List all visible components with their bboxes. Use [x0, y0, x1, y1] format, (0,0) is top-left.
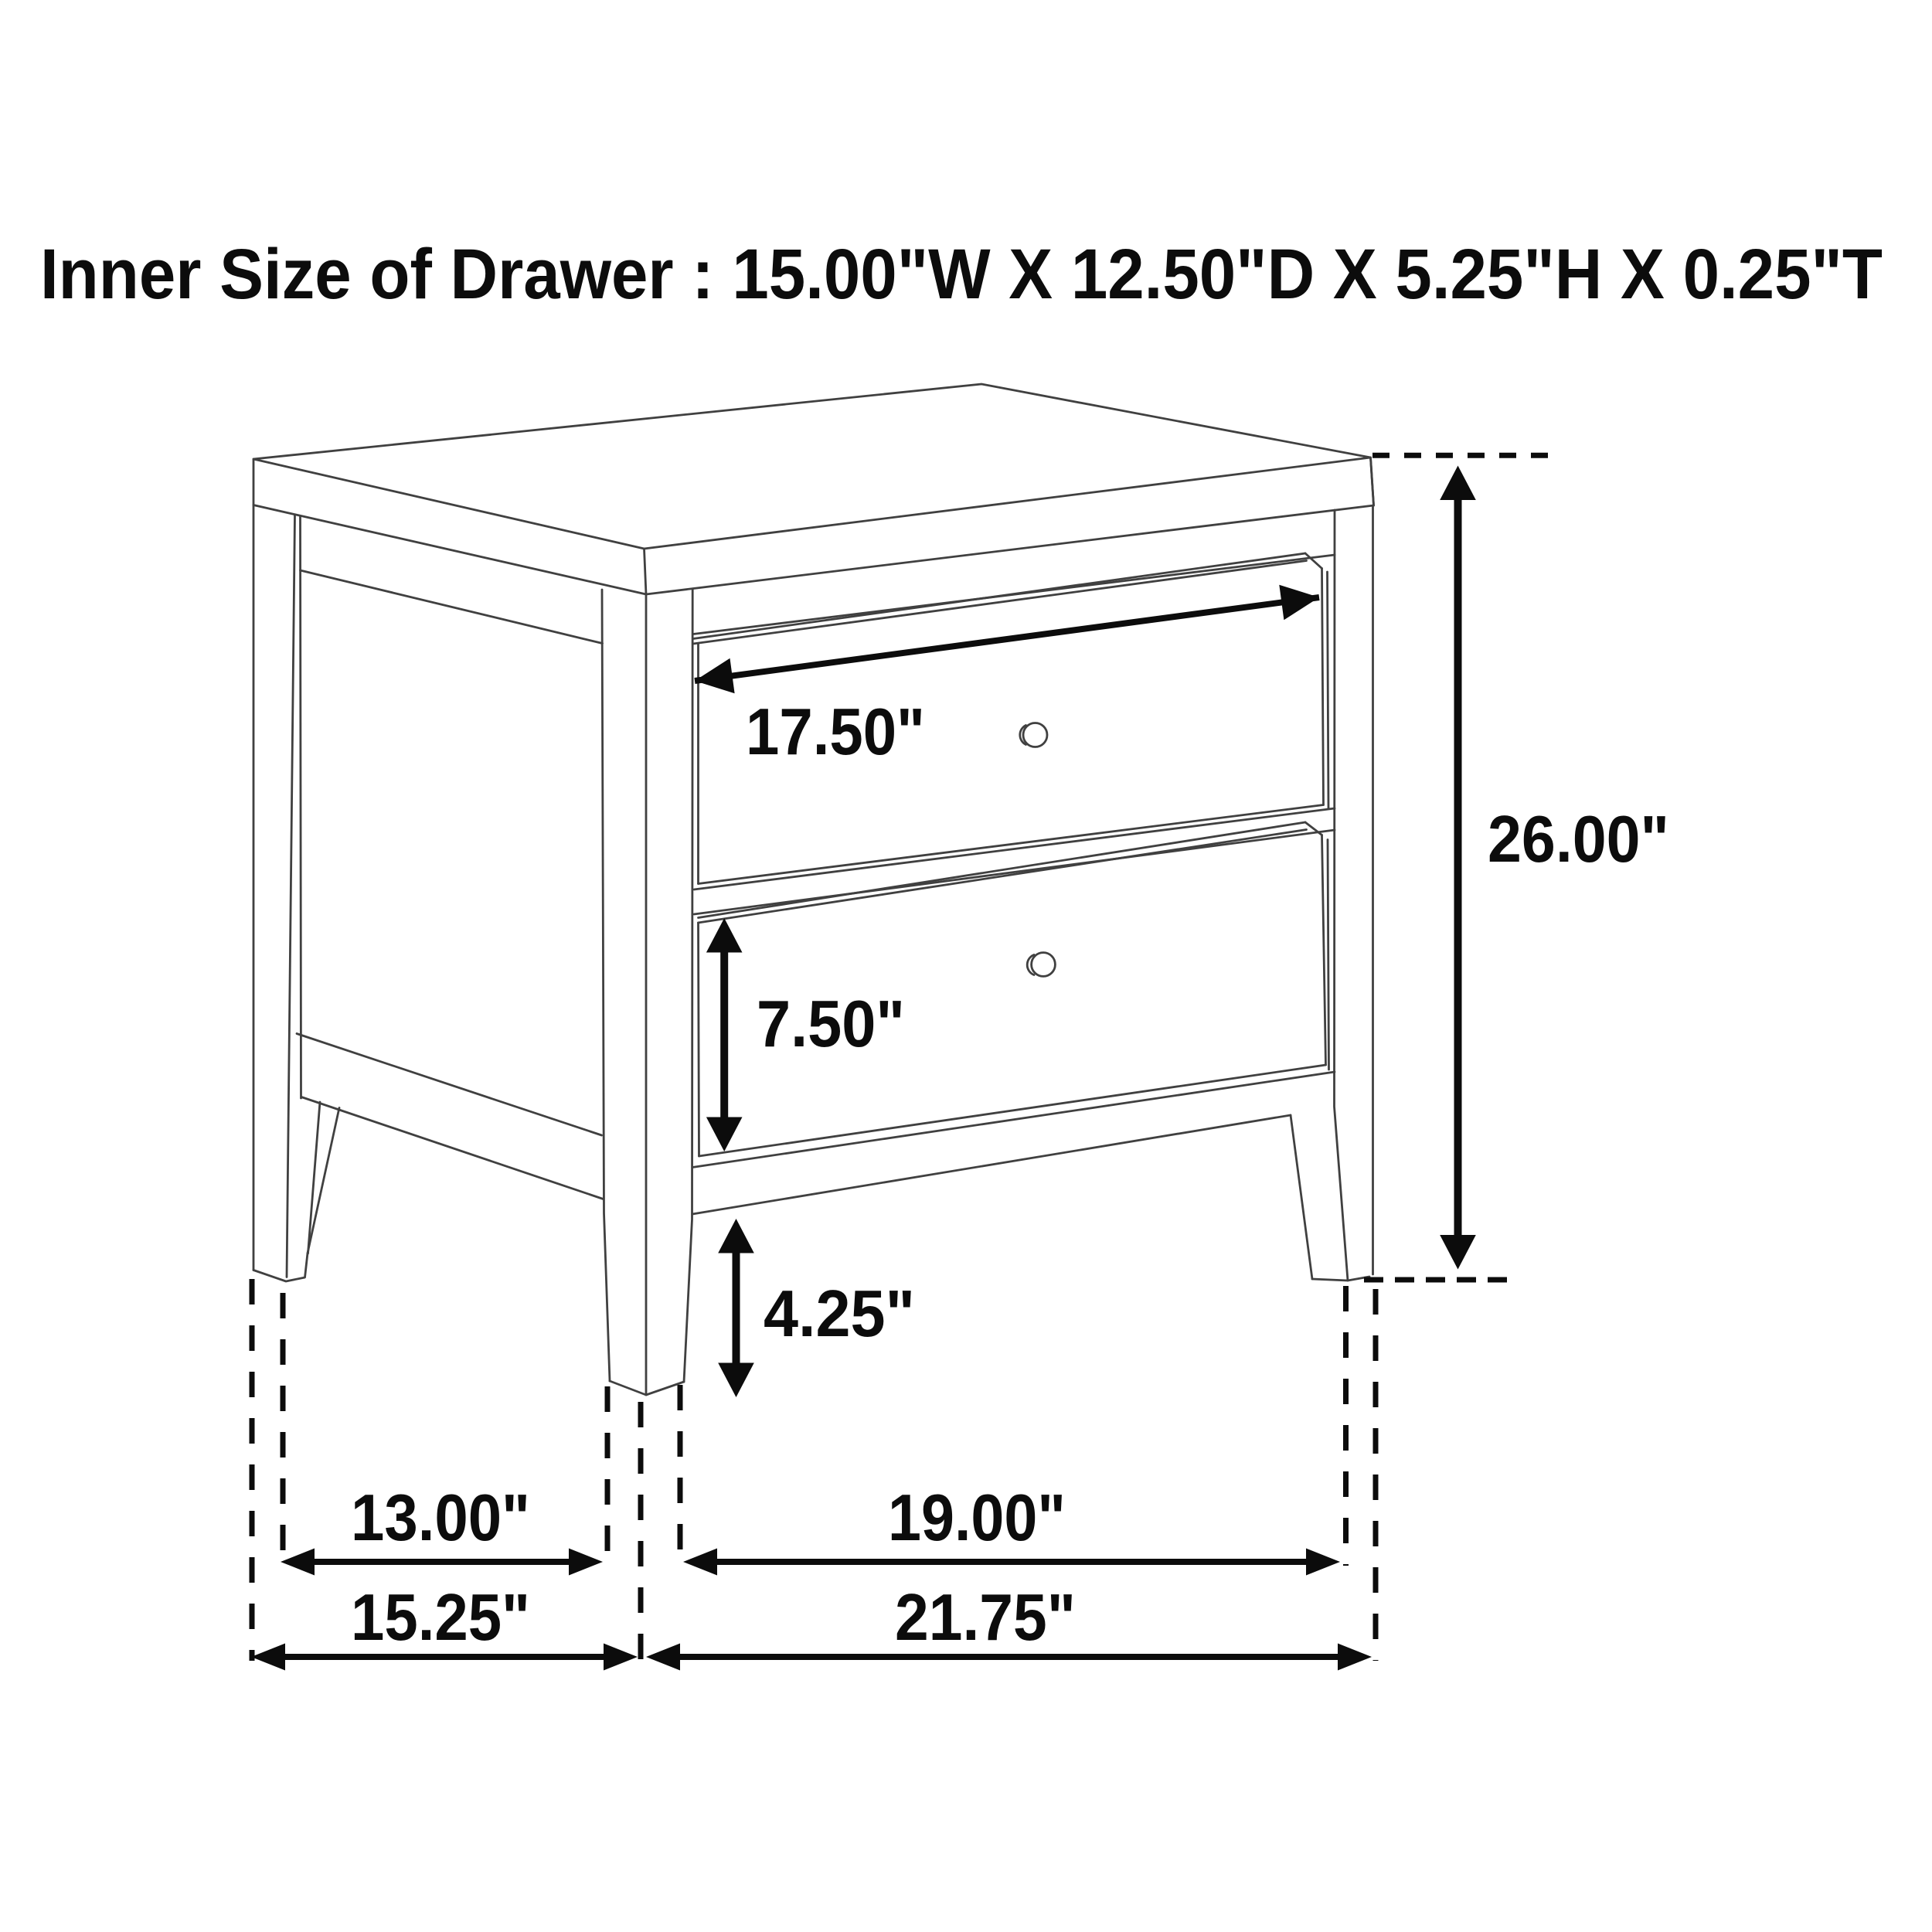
svg-text:19.00": 19.00": [888, 1481, 1066, 1555]
svg-text:7.50": 7.50": [757, 988, 905, 1061]
svg-text:Inner Size of Drawer : 15.00"W: Inner Size of Drawer : 15.00"W X 12.50"D…: [40, 235, 1883, 314]
svg-text:15.25": 15.25": [351, 1581, 530, 1655]
svg-text:13.00": 13.00": [351, 1481, 530, 1555]
svg-text:17.50": 17.50": [746, 696, 925, 769]
svg-text:26.00": 26.00": [1488, 803, 1669, 876]
svg-text:4.25": 4.25": [764, 1277, 915, 1351]
svg-text:21.75": 21.75": [895, 1581, 1076, 1655]
